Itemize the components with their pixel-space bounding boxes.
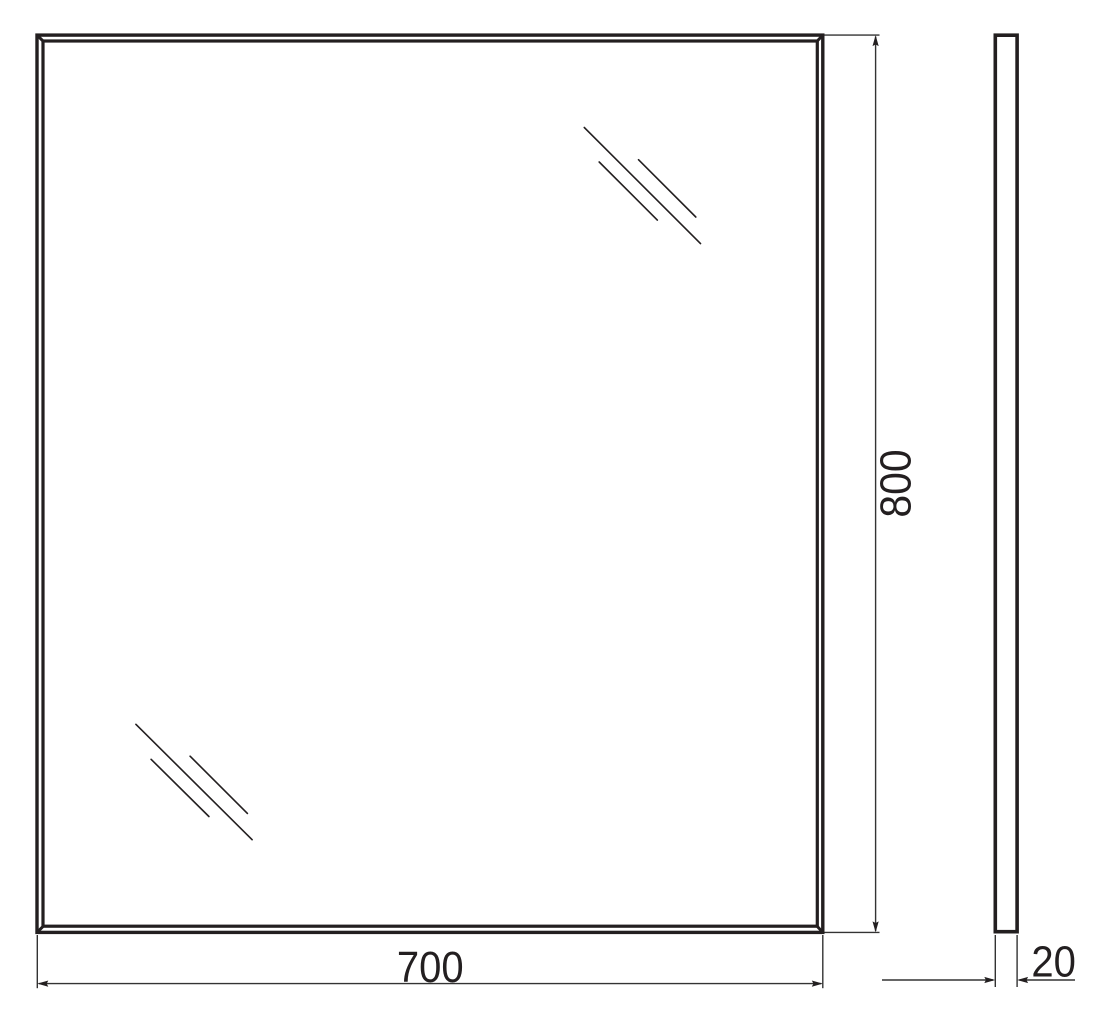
svg-text:20: 20 [1031,937,1076,986]
svg-text:700: 700 [397,942,464,991]
svg-text:800: 800 [872,449,921,517]
